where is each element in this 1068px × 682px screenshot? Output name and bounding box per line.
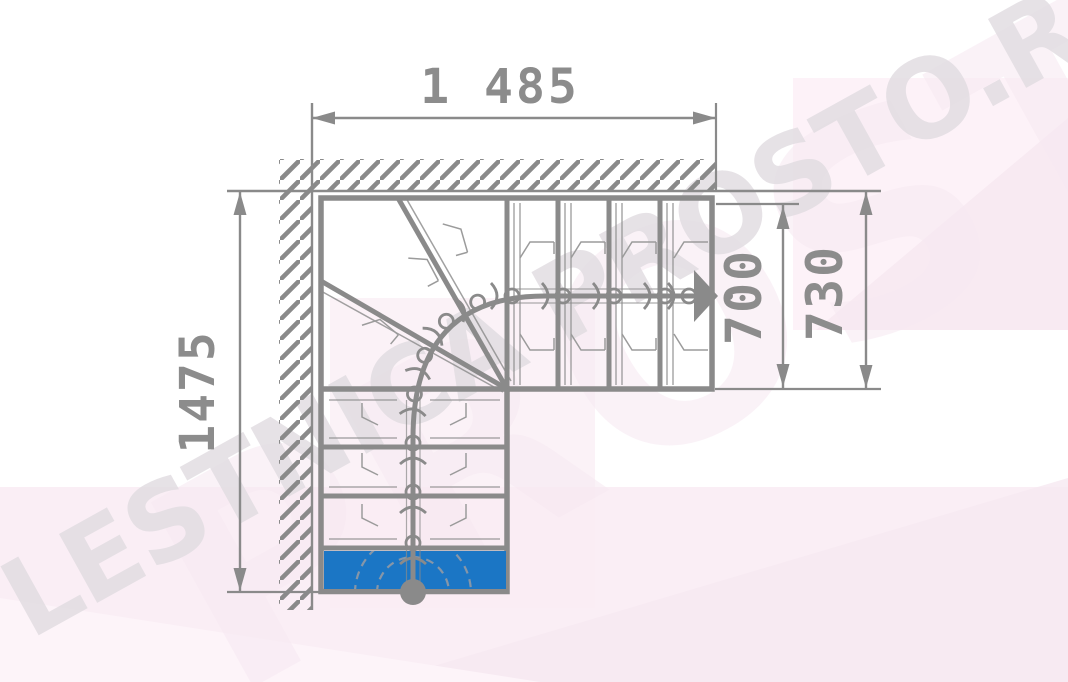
dim-label-730: 730 xyxy=(796,245,854,341)
walkline-start-circle xyxy=(400,579,426,605)
dim-label-700: 700 xyxy=(715,249,773,345)
wall-hatch-top xyxy=(279,159,716,190)
staircase-plan-page: PROSTO LESTNICA PROSTO.RU xyxy=(0,0,1068,682)
staircase-drawing: PROSTO LESTNICA PROSTO.RU xyxy=(0,0,1068,682)
wall-hatch-left xyxy=(279,159,312,610)
dim-label-top: 1 485 xyxy=(420,59,580,115)
dim-label-left: 1475 xyxy=(170,330,226,454)
